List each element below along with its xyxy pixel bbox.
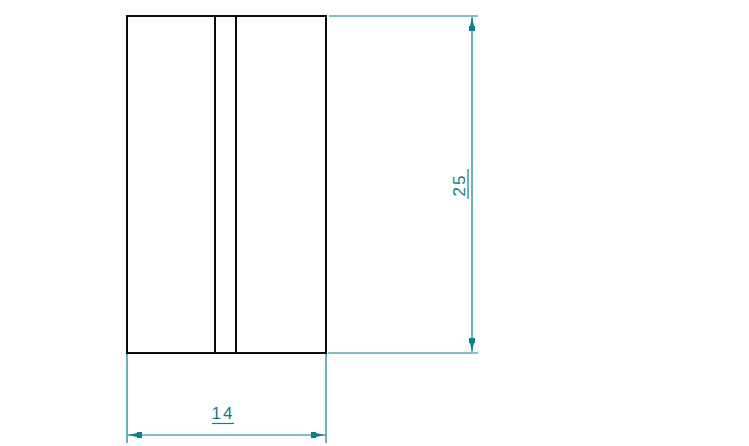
arrowhead-down-icon xyxy=(469,338,475,352)
arrowhead-right-icon xyxy=(311,432,325,438)
arrowhead-up-icon xyxy=(469,17,475,31)
part-outline-rect xyxy=(127,16,326,353)
height-dimension: 25 xyxy=(328,16,478,353)
technical-drawing-canvas: 25 14 xyxy=(0,0,749,446)
height-dimension-text: 25 xyxy=(450,174,469,197)
part-geometry xyxy=(127,16,326,353)
drawing-viewport: 25 14 xyxy=(0,0,749,446)
width-dimension: 14 xyxy=(127,354,326,443)
arrowhead-left-icon xyxy=(128,432,142,438)
width-dimension-text: 14 xyxy=(212,404,235,423)
